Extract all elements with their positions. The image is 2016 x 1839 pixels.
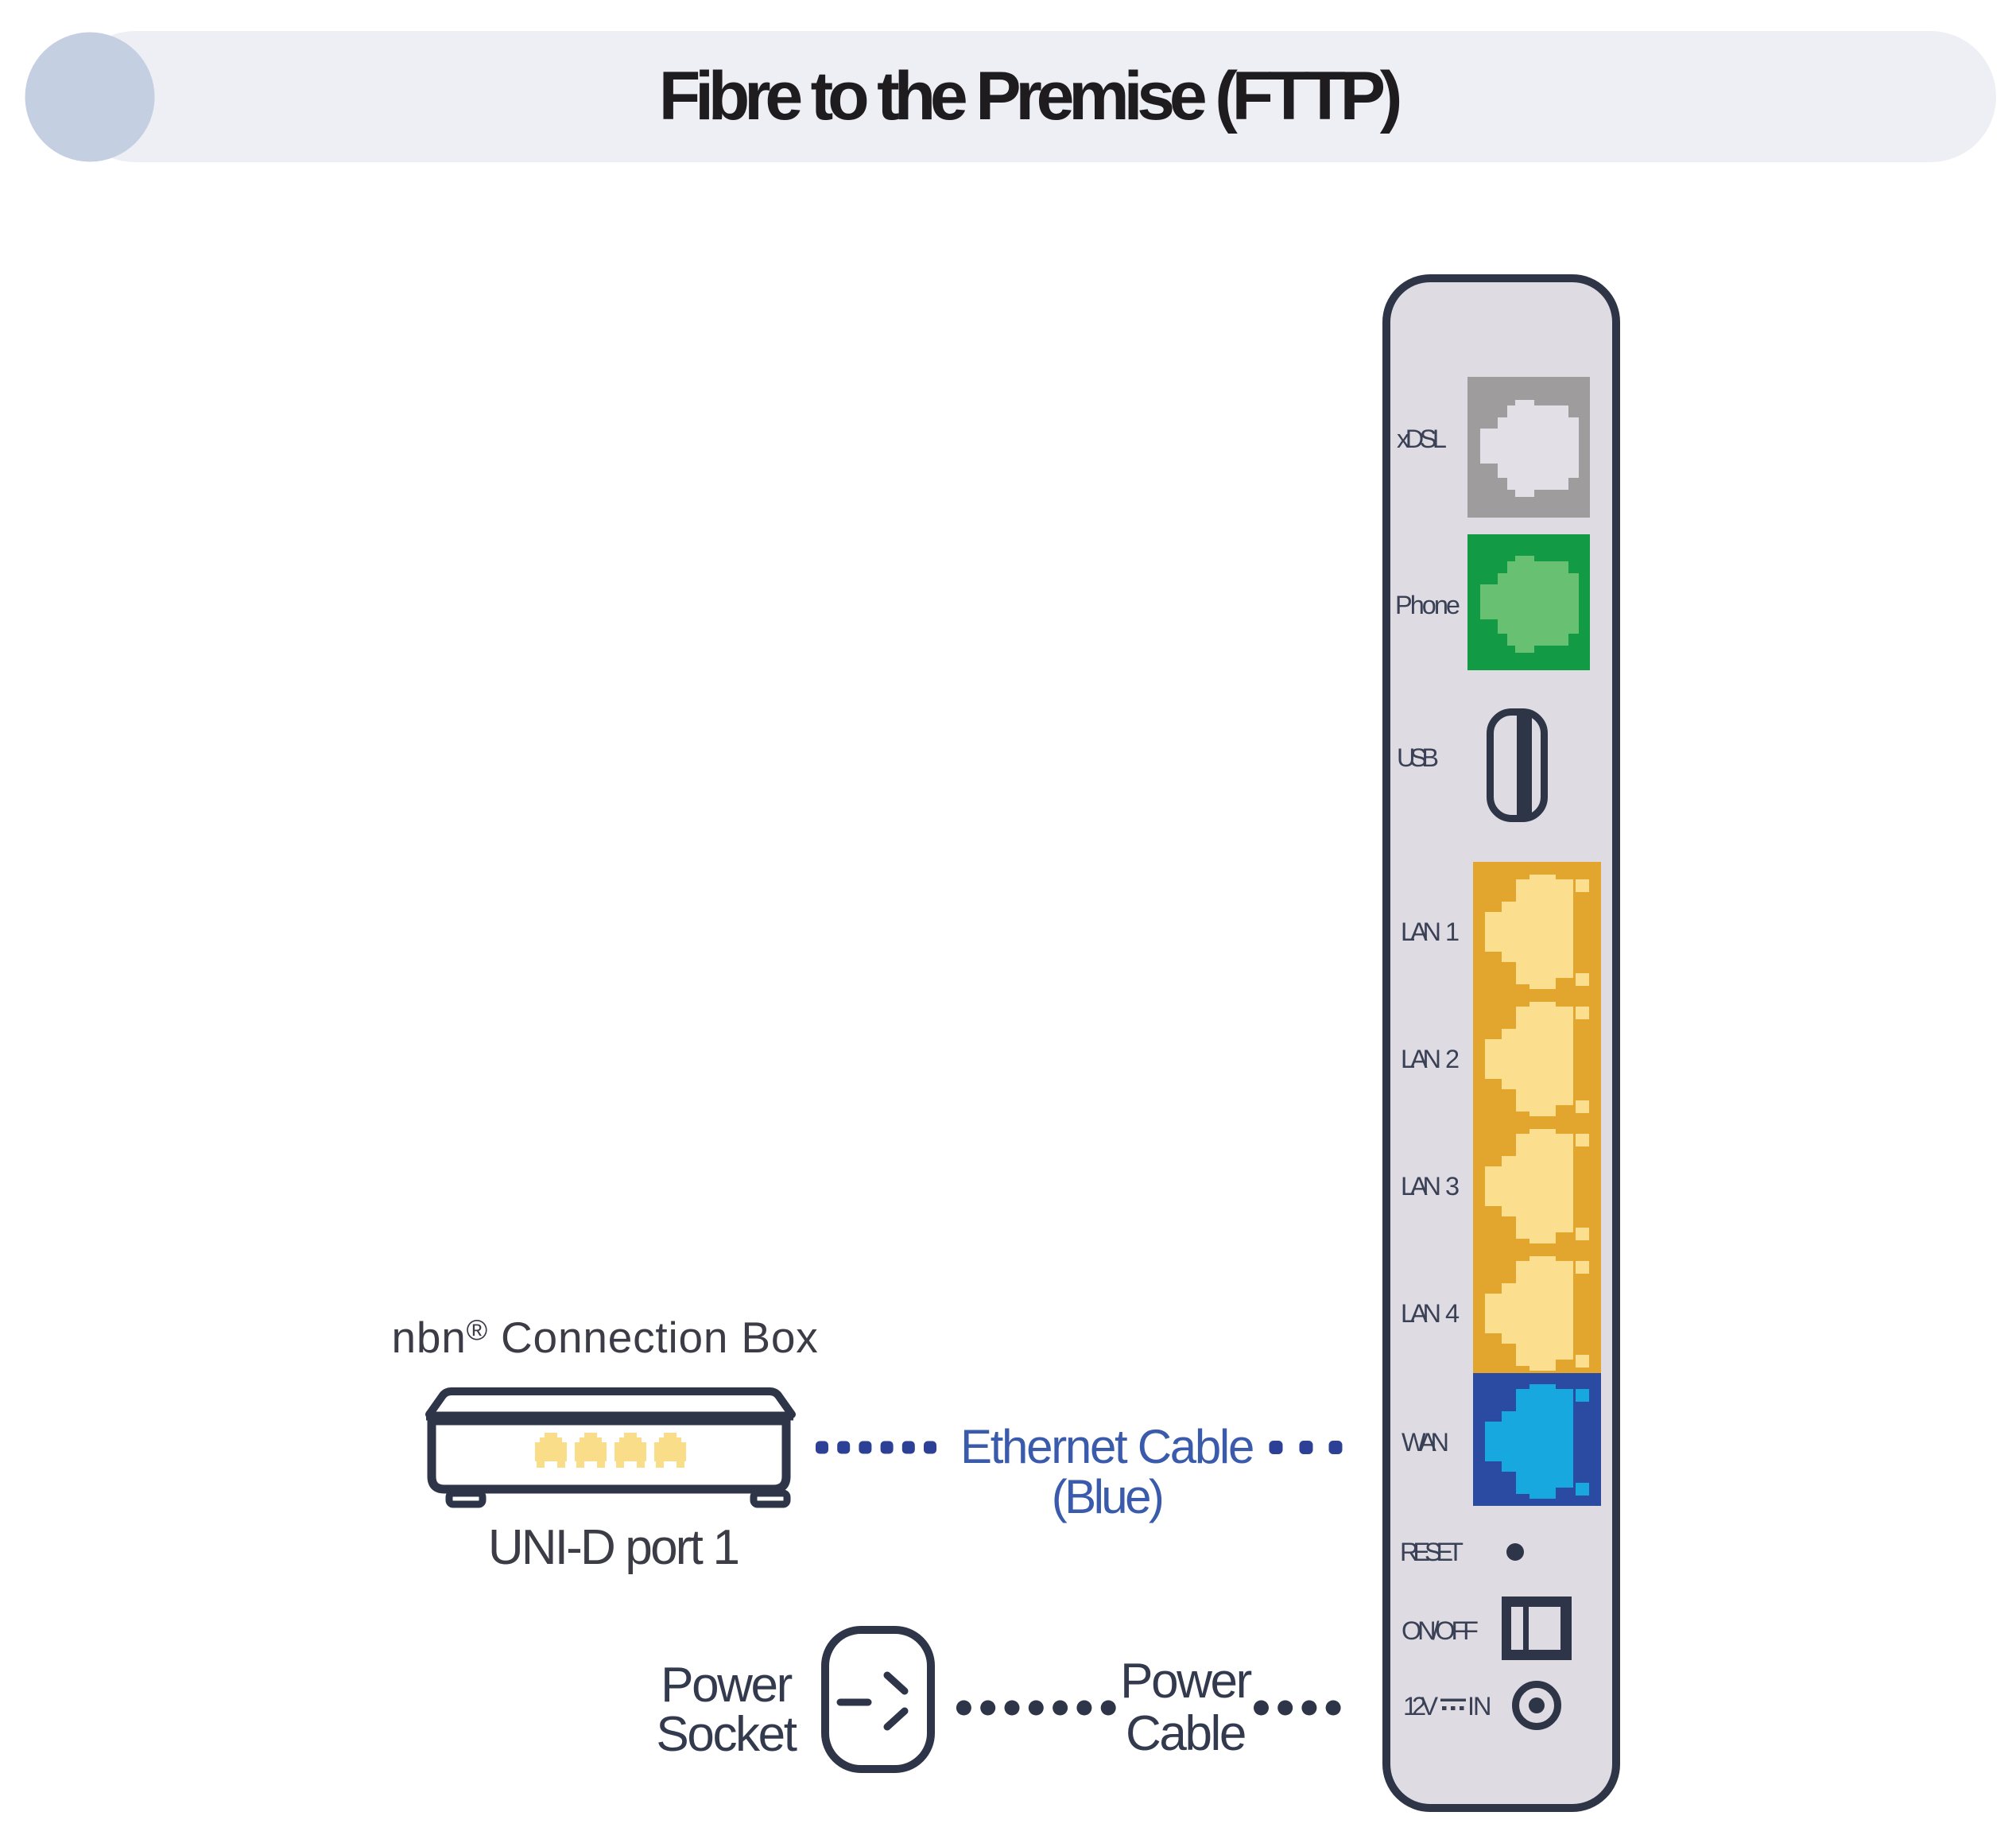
svg-text:LAN: LAN [1401, 1045, 1441, 1073]
svg-text:nbn® Connection Box: nbn® Connection Box [391, 1313, 818, 1362]
svg-text:Phone: Phone [1395, 591, 1460, 619]
svg-text:xDSL: xDSL [1397, 425, 1447, 453]
svg-text:(Blue): (Blue) [1052, 1470, 1162, 1523]
svg-text:UNI-D port 1: UNI-D port 1 [488, 1520, 739, 1575]
svg-text:2: 2 [1445, 1045, 1460, 1073]
svg-text:Power: Power [1120, 1654, 1251, 1709]
svg-text:USB: USB [1397, 743, 1439, 772]
svg-text:LAN: LAN [1401, 1172, 1441, 1201]
svg-text:Power: Power [661, 1658, 792, 1713]
svg-text:LAN: LAN [1401, 918, 1441, 946]
svg-text:RESET: RESET [1400, 1538, 1464, 1566]
svg-text:Fibre to the Premise (FTTP): Fibre to the Premise (FTTP) [659, 58, 1400, 134]
svg-text:Socket: Socket [656, 1707, 797, 1762]
svg-text:WAN: WAN [1402, 1428, 1449, 1457]
svg-text:IN: IN [1467, 1692, 1491, 1721]
svg-text:3: 3 [1445, 1172, 1460, 1201]
svg-text:12V: 12V [1403, 1692, 1438, 1721]
svg-text:ON/OFF: ON/OFF [1402, 1616, 1479, 1645]
svg-text:1: 1 [1445, 918, 1460, 946]
svg-text:LAN: LAN [1401, 1299, 1441, 1328]
svg-text:Ethernet Cable: Ethernet Cable [960, 1420, 1253, 1473]
svg-text:4: 4 [1445, 1299, 1460, 1328]
svg-text:Cable: Cable [1126, 1706, 1245, 1761]
